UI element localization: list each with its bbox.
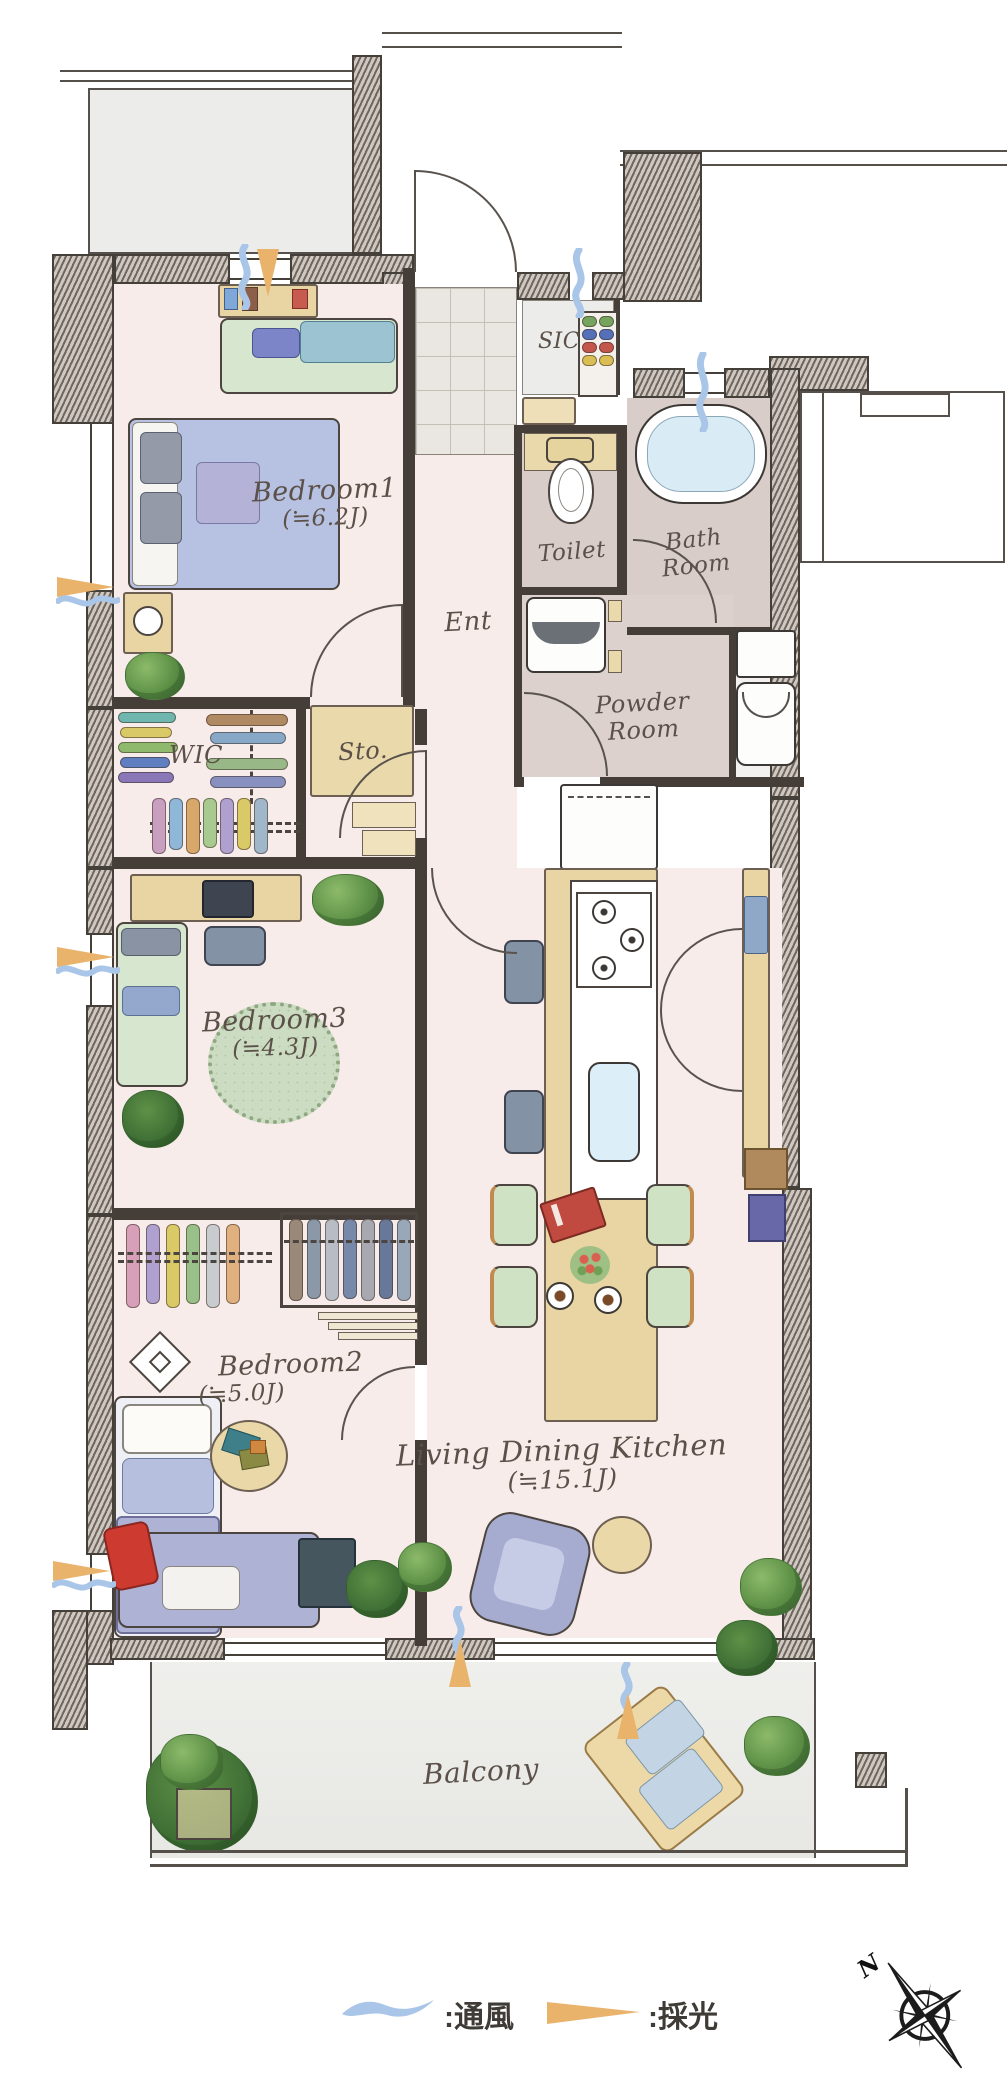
wall: [623, 152, 702, 302]
wall: [415, 838, 427, 1215]
exterior-line: [60, 80, 360, 82]
magazine: [250, 1440, 266, 1454]
clothes: [289, 1219, 303, 1301]
wall: [514, 777, 524, 787]
daylight-cone-icon: [616, 1692, 640, 1740]
step: [328, 1322, 418, 1330]
wall: [385, 1638, 495, 1660]
flower-bouquet: [570, 1246, 610, 1284]
pillow: [122, 986, 180, 1016]
refrigerator-line: [568, 794, 650, 798]
clothes: [397, 1219, 411, 1301]
clothes: [206, 714, 288, 726]
step: [318, 1312, 418, 1320]
bedroom2-label: Bedroom2 (≒5.0J): [175, 1346, 407, 1410]
clothes: [343, 1219, 357, 1299]
dining-chair: [646, 1266, 694, 1328]
clothes: [118, 712, 176, 723]
bedroom1-label: Bedroom1 (≒6.2J): [229, 473, 421, 536]
compass-north-label: N: [852, 1947, 887, 1984]
ventilation-wave-icon: [234, 244, 256, 310]
balcony-railing: [150, 1850, 908, 1853]
plant: [740, 1558, 802, 1616]
clothes: [186, 798, 200, 854]
dining-chair: [490, 1184, 538, 1246]
clothes: [361, 1219, 375, 1301]
kitchen-sink: [588, 1062, 640, 1162]
exterior-line: [382, 46, 622, 48]
desk-chair: [204, 926, 266, 966]
powder-room-name: Powder Room: [557, 686, 730, 749]
wall: [517, 272, 570, 300]
closet-rail: [284, 1240, 414, 1243]
daylight-cone-icon: [448, 1638, 472, 1688]
pillow: [252, 328, 300, 358]
shelf-box-purple: [748, 1194, 786, 1242]
stove-burner: [620, 928, 644, 952]
sic-name: SIC: [524, 330, 594, 355]
laptop: [202, 880, 254, 918]
exterior-line: [60, 70, 360, 72]
pillow: [140, 432, 182, 484]
bedroom1-door-leaf: [401, 604, 403, 697]
clothes: [210, 776, 286, 788]
ventilation-wave-icon: [56, 962, 120, 980]
storage-name: Sto.: [317, 736, 408, 768]
closet-right: [280, 1212, 418, 1308]
wall: [352, 55, 382, 254]
legend-ventilation-icon: [340, 1996, 436, 2026]
dining-chair: [490, 1266, 538, 1328]
shoe: [599, 355, 614, 366]
sofa-cushion: [162, 1566, 240, 1610]
entry-step-mat: [522, 397, 576, 425]
clothes: [379, 1219, 393, 1299]
toilet-bowl-inner: [558, 468, 584, 512]
plant: [122, 1090, 184, 1148]
step: [338, 1332, 418, 1340]
neighbor-unit-line: [822, 391, 824, 563]
wall: [52, 254, 114, 424]
wall: [114, 254, 230, 284]
sic-label: SIC: [524, 330, 594, 355]
clothes: [254, 798, 268, 854]
laundry-cabinet: [736, 630, 796, 678]
balcony-railing: [905, 1788, 908, 1867]
balcony-railing: [150, 1864, 908, 1867]
pouf: [592, 1516, 652, 1574]
closet-left: [118, 1218, 272, 1318]
closet-rail: [118, 1260, 272, 1263]
tall-fridge: [744, 896, 768, 954]
clothes: [226, 1224, 240, 1304]
stove-burner: [592, 900, 616, 924]
lamp: [133, 606, 163, 636]
wall: [114, 697, 310, 709]
pillow: [140, 492, 182, 544]
stove-burner: [592, 956, 616, 980]
entry-door-arc: [415, 170, 517, 272]
neighbor-unit-closet: [860, 393, 950, 417]
compass-rose: N: [852, 1944, 1002, 2073]
clothes: [325, 1219, 339, 1301]
wall: [633, 368, 685, 398]
clothes: [203, 798, 217, 848]
palm-plant-top: [160, 1734, 224, 1790]
wall: [729, 627, 736, 777]
shoe: [599, 342, 614, 353]
desk-item: [292, 289, 308, 309]
clothes: [152, 798, 166, 854]
wall: [724, 368, 770, 398]
coffee-cup: [594, 1286, 622, 1314]
vanity-side-shelf: [608, 650, 622, 673]
wall: [855, 1752, 887, 1788]
wall: [86, 708, 114, 868]
legend-daylight-icon: [546, 2000, 642, 2026]
shoe: [599, 316, 614, 327]
wall: [415, 709, 427, 745]
clothes: [169, 798, 183, 850]
clothes: [120, 727, 172, 738]
floor-plan: Bedroom1 (≒6.2J) Ent SIC Toilet Bath Roo…: [0, 0, 1007, 2073]
exterior-line: [382, 32, 622, 34]
ventilation-wave-icon: [52, 1576, 116, 1594]
wall: [86, 1005, 114, 1215]
counter-stool: [504, 1090, 544, 1154]
wic-label: WIC: [156, 742, 236, 769]
window: [225, 1642, 385, 1656]
clothes: [146, 1224, 160, 1304]
shelf-box: [744, 1148, 788, 1190]
hallway-floor: [415, 455, 517, 868]
legend-ventilation-text: :通風: [444, 2001, 514, 2034]
plant: [125, 652, 185, 700]
plant: [312, 874, 384, 926]
clothes: [166, 1224, 180, 1308]
plant: [398, 1542, 452, 1592]
clothes: [220, 798, 234, 854]
plant-pot: [176, 1788, 232, 1840]
ldk-label: Living Dining Kitchen (≒15.1J): [377, 1428, 747, 1501]
pillow: [121, 928, 181, 956]
bedroom3-door-leaf: [425, 750, 427, 838]
legend-daylight-label: :採光: [648, 1992, 758, 2036]
wall: [514, 425, 522, 785]
clothes: [186, 1224, 200, 1304]
wic-name: WIC: [156, 742, 236, 769]
shoe: [599, 329, 614, 340]
ventilation-wave-icon: [692, 352, 714, 432]
entrance-label: Ent: [427, 606, 508, 639]
plant: [744, 1716, 810, 1776]
window: [90, 424, 114, 590]
daylight-cone-icon: [256, 248, 280, 298]
bedroom3-label: Bedroom3 (≒4.3J): [179, 1003, 371, 1066]
ventilation-wave-icon: [56, 592, 120, 610]
ventilation-wave-icon: [568, 248, 590, 318]
shoe: [582, 355, 597, 366]
entrance-name: Ent: [427, 606, 508, 639]
entry-door-leaf: [414, 170, 416, 272]
clothes: [307, 1219, 321, 1299]
storage-label: Sto.: [317, 736, 408, 768]
wall: [514, 587, 625, 595]
plant: [716, 1620, 778, 1676]
wall: [86, 868, 114, 935]
wall: [114, 857, 420, 869]
dining-chair: [646, 1184, 694, 1246]
clothes: [237, 798, 251, 850]
pillow: [122, 1404, 212, 1454]
closet-rail: [118, 1252, 272, 1255]
pillow: [122, 1458, 214, 1514]
wall: [52, 1610, 88, 1730]
wall: [617, 425, 627, 595]
single-bed-blanket: [300, 321, 395, 363]
exterior-void: [88, 88, 354, 254]
wall: [514, 425, 624, 433]
wall: [110, 1638, 225, 1660]
clothes: [118, 772, 174, 783]
clothes: [206, 1224, 220, 1308]
entrance-floor: [415, 287, 517, 455]
powder-room-label: Powder Room: [557, 686, 730, 749]
wic-rack-bottom: [152, 798, 300, 856]
clothes: [126, 1224, 140, 1308]
vanity-side-shelf: [608, 600, 622, 622]
legend-daylight-text: :採光: [648, 2001, 718, 2034]
wall: [86, 1215, 114, 1555]
legend-ventilation-label: :通風: [444, 1992, 554, 2036]
coffee-cup: [546, 1282, 574, 1310]
